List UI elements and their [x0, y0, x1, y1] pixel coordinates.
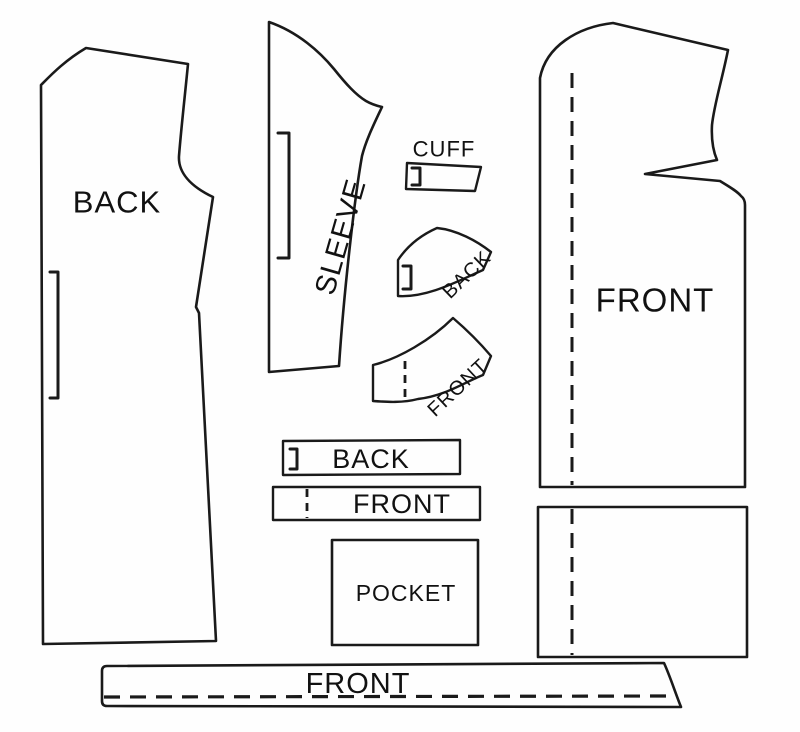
sewing-pattern-diagram: BACK SLEEVE CUFF BACK FRONT BACK FRONT: [0, 0, 800, 732]
cuff-label: CUFF: [413, 137, 476, 162]
back-body-label: BACK: [73, 185, 161, 220]
front-body-label: FRONT: [596, 282, 715, 319]
band-front-label: FRONT: [353, 489, 451, 519]
pocket-label: POCKET: [356, 580, 457, 606]
canvas-background: [0, 0, 800, 732]
band-back-label: BACK: [332, 444, 410, 474]
front-facing-label: FRONT: [306, 668, 411, 700]
